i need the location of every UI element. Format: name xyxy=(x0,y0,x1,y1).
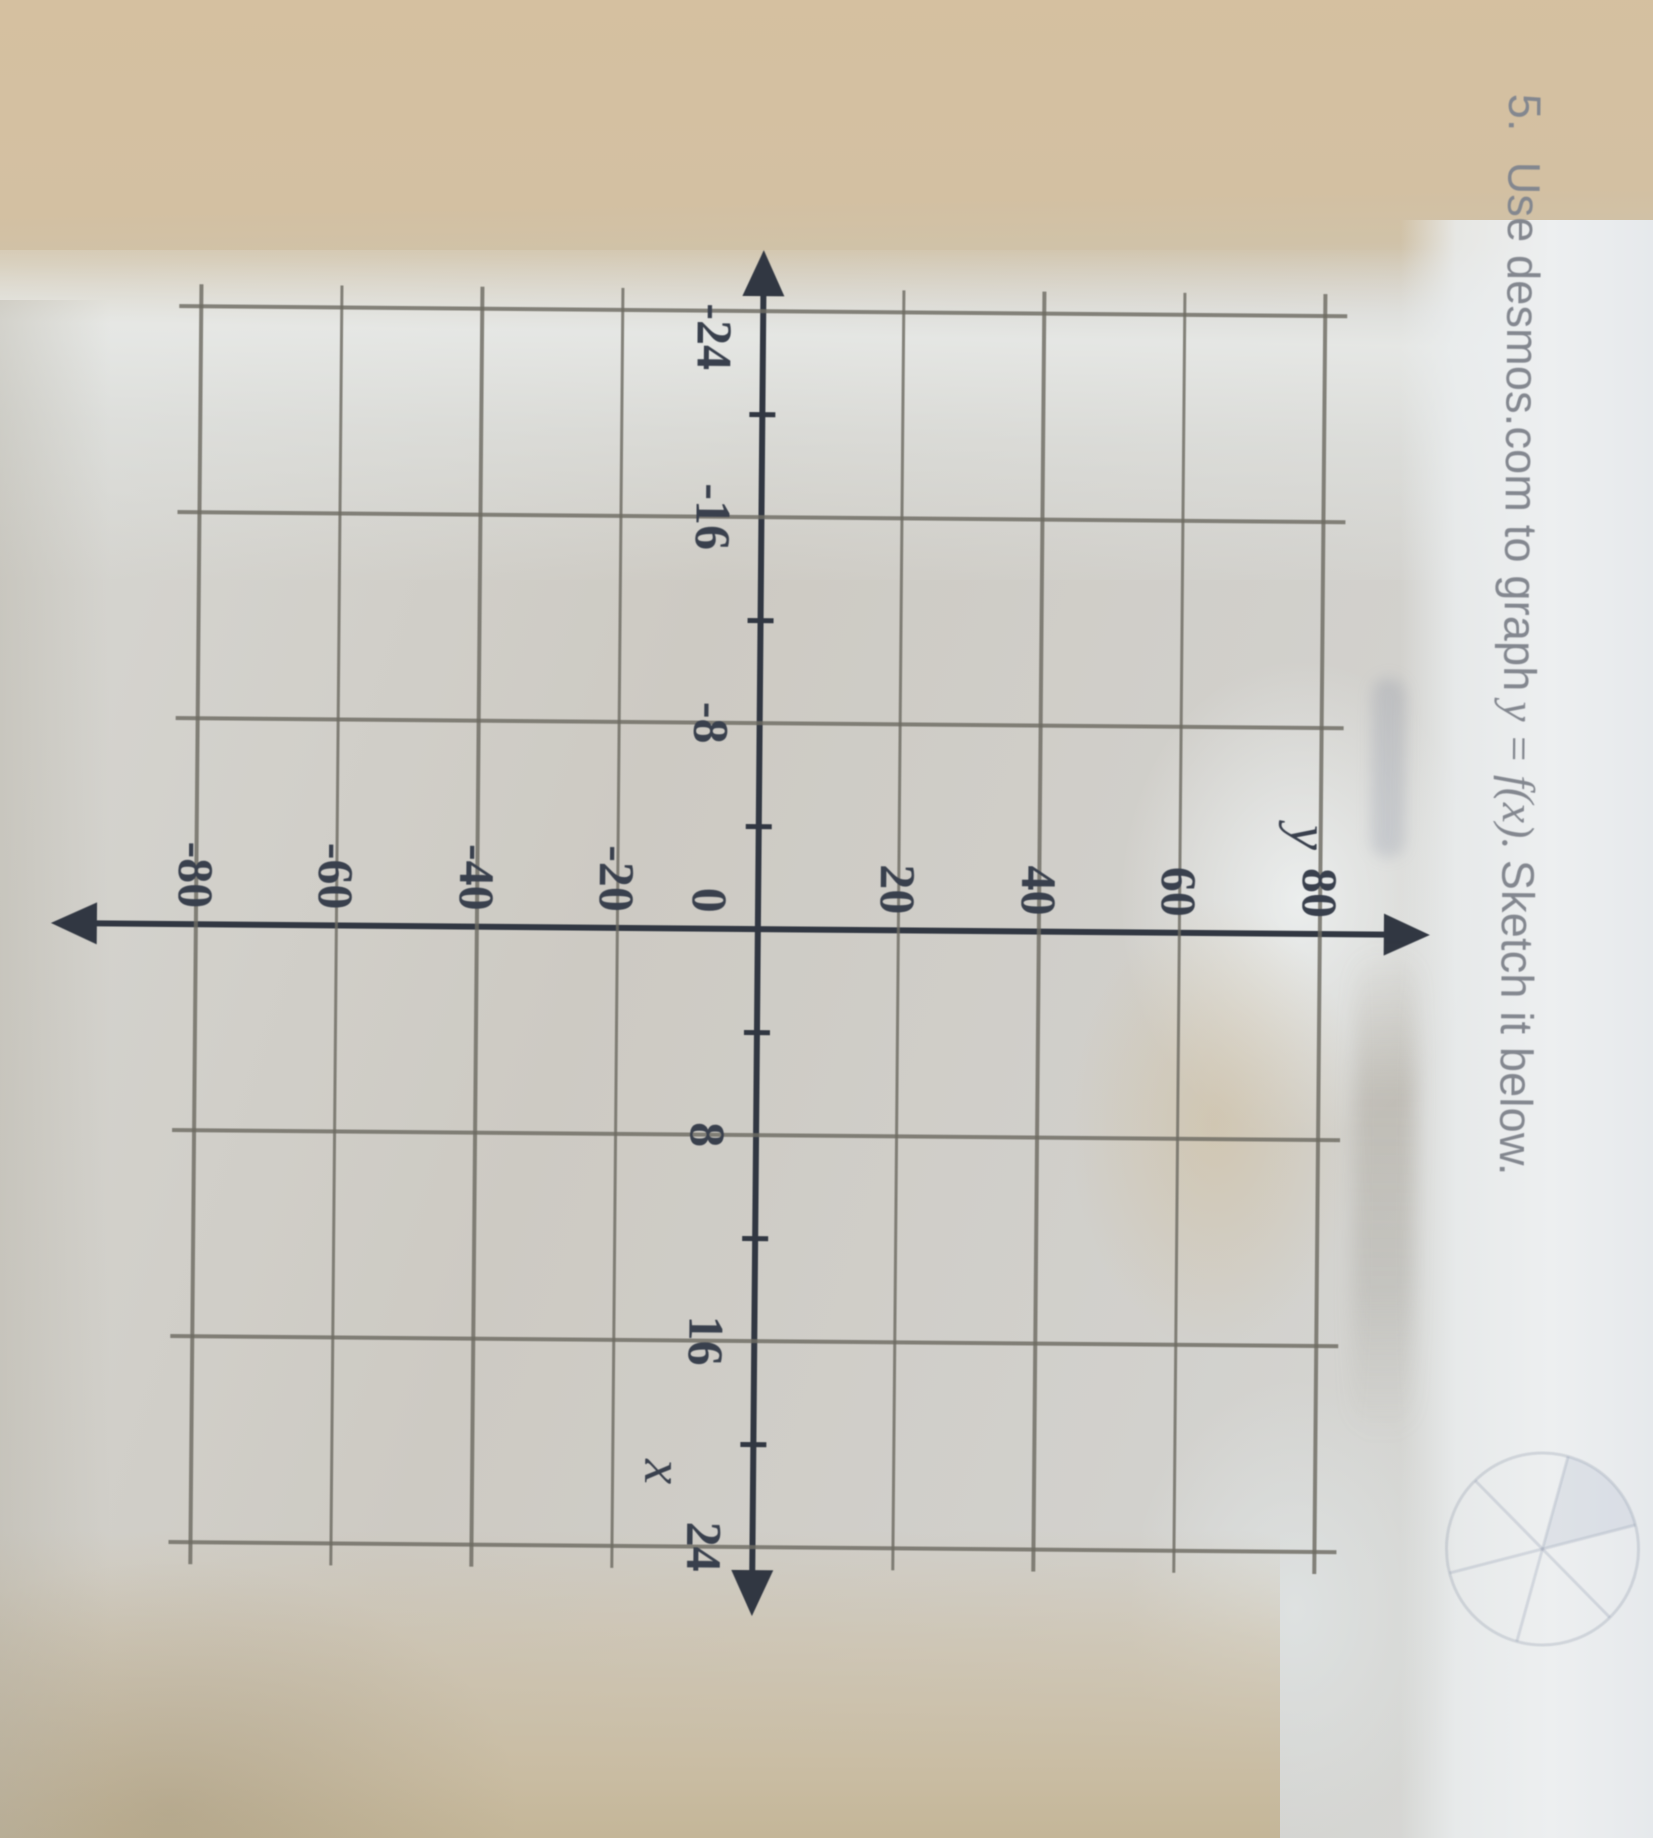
x-tick-label: 16 xyxy=(676,1270,737,1411)
x-axis xyxy=(749,292,766,1574)
y-tick-label: -40 xyxy=(447,750,508,911)
worksheet-photo: 5.Use desmos.com to graphy = f(x).Sketch… xyxy=(0,0,1653,1838)
y-tick-label: 80 xyxy=(1290,758,1351,919)
x-axis-minor-tick xyxy=(749,412,775,417)
x-axis-minor-tick xyxy=(746,824,772,829)
x-axis-minor-tick xyxy=(744,1030,770,1035)
x-tick-label: -24 xyxy=(684,266,745,407)
origin-label: 0 xyxy=(680,812,741,913)
y-tick-label: 60 xyxy=(1149,757,1210,918)
x-axis-minor-tick xyxy=(742,1236,768,1241)
y-tick-label: 40 xyxy=(1009,755,1070,916)
y-tick-label: -80 xyxy=(166,748,227,909)
x-tick-label: 8 xyxy=(677,1064,738,1205)
x-axis-minor-tick xyxy=(740,1441,766,1446)
y-tick-label: 20 xyxy=(868,754,929,915)
x-axis-minor-tick xyxy=(748,618,774,623)
x-tick-label: -8 xyxy=(681,652,742,793)
x-tick-label: 24 xyxy=(674,1476,735,1617)
y-axis xyxy=(93,920,1388,937)
x-tick-label: -16 xyxy=(683,446,744,587)
worksheet-page-rotated: 5.Use desmos.com to graphy = f(x).Sketch… xyxy=(0,0,1653,1838)
coordinate-grid: x y -24-16-808162480604020-20-40-60-80 xyxy=(0,0,1653,1838)
y-tick-label: -20 xyxy=(588,752,649,913)
y-tick-label: -60 xyxy=(307,749,368,910)
